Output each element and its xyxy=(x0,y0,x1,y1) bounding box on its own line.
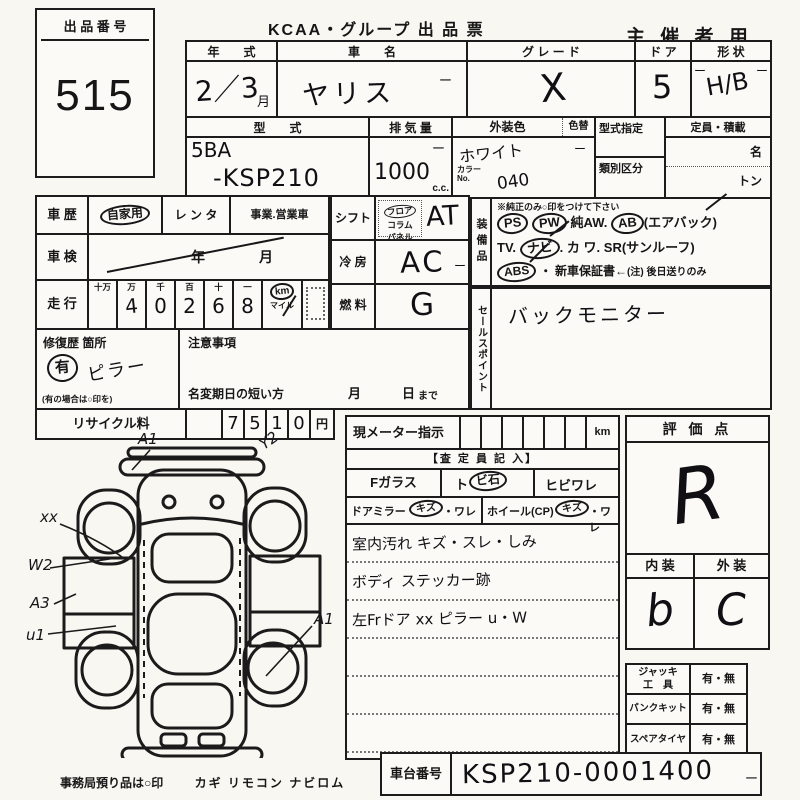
accessory-row: ジャッキ 工 具 有・無 xyxy=(627,665,746,695)
shape-label: 形 状 xyxy=(692,42,770,62)
footer-note: 事務局預り品は○印 カギ リモコン ナビロム xyxy=(60,774,345,791)
damage-code-rear-right: A1 xyxy=(313,610,334,628)
vin-box: 車台番号 KSP210-0001400 ー xyxy=(380,752,762,796)
rename-label: 名変期日の短い方 xyxy=(188,385,284,402)
accessory-row: パンクキット 有・無 xyxy=(627,695,746,725)
deposit-note: 事務局預り品は○印 xyxy=(60,776,163,790)
equipment-navi-dot: . xyxy=(560,240,564,255)
use-private-option: 自家用 xyxy=(99,203,151,227)
equipment-aw: 純AW. xyxy=(571,215,608,230)
sheet-title: KCAA・グループ 出 品 票 xyxy=(268,16,485,40)
meter-label: 現メーター指示 xyxy=(347,417,459,448)
inspection-month-unit: 月 xyxy=(259,247,273,267)
meter-digit-box xyxy=(543,417,564,448)
displacement-label: 排 気 量 xyxy=(370,118,451,138)
accessory-label: パンクキット xyxy=(627,695,691,723)
lot-number-box: 出 品 番 号 515 xyxy=(35,8,155,178)
sales-point-block: セールスポイント バックモニター xyxy=(470,287,772,410)
equipment-navi: ナビ xyxy=(519,236,561,260)
equipment-warranty: ・ 新車保証書← xyxy=(540,264,627,278)
model-label: 型 式 xyxy=(187,118,368,138)
fuel-value: G xyxy=(409,287,434,324)
meter-digit-box xyxy=(564,417,585,448)
door-mirror-kizu: キズ xyxy=(408,499,443,519)
rename-day-unit: 日 xyxy=(402,383,415,402)
year-month-suffix: 月 xyxy=(257,91,270,110)
shape-value: H/B xyxy=(704,67,751,102)
history-row: 車 歴 自家用 レ ン タ 事業.営業車 xyxy=(37,197,328,235)
auction-sheet: 出 品 番 号 515 KCAA・グループ 出 品 票 主 催 者 用 年 式 … xyxy=(0,0,800,800)
mileage-extra-box xyxy=(306,287,325,320)
meter-unit: km xyxy=(585,417,618,448)
door-value: 5 xyxy=(652,68,672,106)
caution-box: 注意事項 名変期日の短い方 月 日 まで xyxy=(178,328,470,410)
color-no-label-1: カラー xyxy=(457,165,481,174)
odo-unit: 千 xyxy=(147,281,174,294)
type-designation-label: 型式指定 xyxy=(596,118,664,138)
equipment-ab: AB xyxy=(610,212,644,236)
meter-digit-box xyxy=(459,417,480,448)
exterior-label: 外 装 xyxy=(695,555,768,577)
color-change-label: 色替 xyxy=(562,118,594,136)
rename-month-unit: 月 xyxy=(348,383,361,402)
vin-label: 車台番号 xyxy=(382,754,452,794)
inspection-year-unit: 年 xyxy=(191,247,205,267)
capacity-label: 定員・積載 xyxy=(666,118,770,138)
repair-history-box: 修復歴 箇所 有 ピラー (有の場合は○印を) xyxy=(35,328,180,410)
year-label: 年 式 xyxy=(187,42,276,62)
check-tick: ー xyxy=(574,140,586,157)
mileage-row: 走 行 十万 万4 千0 百2 十6 一8 km マイル xyxy=(37,281,328,328)
car-top-view: A1 Y2 xx W2 A3 u1 A1 xyxy=(20,428,345,758)
repair-detail: ピラー xyxy=(85,351,149,387)
ext-color-value: ホワイト xyxy=(458,137,524,168)
odo-digit: 0 xyxy=(147,294,174,318)
grade-label: グ レ ー ド xyxy=(468,42,634,62)
damage-code-w2: W2 xyxy=(28,556,52,574)
repair-mark: 有 xyxy=(46,353,79,383)
odo-digit: 6 xyxy=(205,294,232,318)
damage-code-front-right: Y2 xyxy=(256,428,282,453)
displacement-unit: c.c. xyxy=(432,183,449,194)
accessory-label2: 工 具 xyxy=(627,680,689,693)
damage-code-u1: u1 xyxy=(26,626,45,644)
controls-block: シフト フロア コラム パネル AT 冷 房 AC ー 燃 料 G xyxy=(330,195,470,330)
odo-unit: 十 xyxy=(205,281,232,294)
equipment-abs: ABS xyxy=(496,260,537,283)
repair-hint: (有の場合は○印を) xyxy=(42,393,112,405)
shift-option-floor: フロア xyxy=(384,204,417,220)
lot-number-value: 515 xyxy=(37,71,153,121)
odo-unit: 十万 xyxy=(89,281,116,294)
use-rental-option: レ ン タ xyxy=(163,197,231,233)
capacity-persons-unit: 名 xyxy=(666,138,770,167)
accessories-box: ジャッキ 工 具 有・無 パンクキット 有・無 スペアタイヤ 有・無 xyxy=(625,663,748,759)
check-tick: ー xyxy=(454,257,466,274)
damage-code-a3: A3 xyxy=(29,594,50,612)
assessor-box: 現メーター指示 km 【査 定 員 記 入】 Fガラス ト ビ石 ヒビワレ ドア… xyxy=(345,415,620,760)
door-label: ド ア xyxy=(636,42,690,62)
accessory-value: 有・無 xyxy=(691,665,746,693)
equipment-block: 装備品 ※純正のみ○印をつけて下さい PS PW 純AW. AB(エアバック) … xyxy=(470,197,772,287)
color-no-value: 040 xyxy=(496,170,531,194)
equipment-sr: SR(サンルーフ) xyxy=(604,240,695,255)
shift-option-column: コラム xyxy=(379,219,421,231)
year-value: 2／3 xyxy=(194,66,260,110)
mirror-wheel-row: ドアミラー キズ ・ワレ ホイール(CP) キズ ・ワレ xyxy=(347,498,618,525)
caution-label: 注意事項 xyxy=(188,334,236,351)
check-tick: ー xyxy=(745,768,758,787)
exterior-value: C xyxy=(714,578,749,644)
front-glass-label: Fガラス xyxy=(347,470,442,496)
front-glass-opt-stone-b: ビ石 xyxy=(468,469,508,492)
interior-value: b xyxy=(643,578,677,645)
lot-number-label: 出 品 番 号 xyxy=(41,10,149,41)
odo-digit: 8 xyxy=(234,294,261,318)
grade-box: 評 価 点 R 内 装 外 装 b C xyxy=(625,415,770,650)
inspection-strike xyxy=(107,237,284,273)
class-section-label: 類別区分 xyxy=(596,158,664,178)
assessor-note: ボディ ステッカー跡 xyxy=(352,569,491,592)
front-glass-row: Fガラス ト ビ石 ヒビワレ xyxy=(347,470,618,498)
wheel-label: ホイール(CP) xyxy=(487,503,554,519)
sales-point-value: バックモニター xyxy=(508,298,669,330)
vehicle-table-row2: 型 式 5BA -KSP210 排 気 量 ー 1000 c.c. 外装色 色替… xyxy=(185,116,772,200)
mileage-label: 走 行 xyxy=(37,281,89,328)
accessory-value: 有・無 xyxy=(691,695,746,723)
score-value: R xyxy=(664,440,731,550)
odo-digit: 4 xyxy=(117,293,146,320)
shift-options-box: フロア コラム パネル xyxy=(378,200,422,237)
blank-note-line xyxy=(347,677,618,715)
color-no-label-2: No. xyxy=(457,174,470,183)
history-label: 車 歴 xyxy=(37,197,89,233)
cooling-value: AC xyxy=(399,244,446,280)
front-glass-opt-stone-a: ト xyxy=(455,474,468,493)
model-code-prefix: 5BA xyxy=(191,138,231,162)
meter-digit-box xyxy=(501,417,522,448)
km-unit: km xyxy=(269,282,295,301)
color-no-label: カラー No. xyxy=(457,166,481,184)
damage-code-xx: xx xyxy=(39,508,58,526)
mile-unit: マイル xyxy=(263,300,301,311)
score-label: 評 価 点 xyxy=(627,417,768,443)
history-block: 車 歴 自家用 レ ン タ 事業.営業車 車 検 年 月 走 行 十万 万4 千… xyxy=(35,195,330,330)
meter-row: 現メーター指示 km xyxy=(347,417,618,450)
equipment-kawa: カ ワ. xyxy=(567,240,600,255)
repair-label: 修復歴 箇所 xyxy=(43,334,106,351)
equipment-ab-suffix: (エアバック) xyxy=(644,215,717,230)
check-tick: ー xyxy=(756,62,768,79)
equipment-ps: PS xyxy=(496,212,529,236)
deposit-items: カギ リモコン ナビロム xyxy=(195,776,346,790)
blank-note-line xyxy=(347,639,618,677)
door-mirror-ware: ・ワレ xyxy=(443,503,476,519)
inspection-label: 車 検 xyxy=(37,235,89,279)
displacement-value: 1000 xyxy=(374,160,430,185)
use-business-option: 事業.営業車 xyxy=(231,197,328,233)
front-glass-opt-crack: ヒビワレ xyxy=(545,475,597,494)
shift-label: シフト xyxy=(332,197,376,239)
name-label: 車 名 xyxy=(278,42,466,62)
wheel-kizu: キズ xyxy=(554,499,589,519)
model-code-value: -KSP210 xyxy=(213,164,320,192)
meter-digit-box xyxy=(480,417,501,448)
door-mirror-label: ドアミラー xyxy=(351,503,406,519)
rename-until: まで xyxy=(418,387,438,402)
cooling-label: 冷 房 xyxy=(332,241,376,283)
fuel-label: 燃 料 xyxy=(332,285,376,328)
odo-digit: 2 xyxy=(176,294,203,318)
blank-note-line xyxy=(347,715,618,753)
meter-digit-box xyxy=(522,417,543,448)
name-value: ヤリス xyxy=(301,70,395,112)
assessor-note: 室内汚れ キズ・スレ・しみ xyxy=(352,530,537,554)
grade-value: X xyxy=(538,65,569,111)
equipment-tv: TV. xyxy=(497,240,516,255)
interior-label: 内 装 xyxy=(627,555,695,577)
vin-value: KSP210-0001400 xyxy=(462,756,715,790)
vehicle-table-row1: 年 式 2／3 月 車 名 ヤリス ー グ レ ー ド X ド ア 5 xyxy=(185,40,772,118)
sales-point-label: セールスポイント xyxy=(474,305,489,393)
ext-color-label: 外装色 xyxy=(453,118,562,136)
odo-unit: 百 xyxy=(176,281,203,294)
equipment-label: 装備品 xyxy=(473,218,489,266)
shift-value: AT xyxy=(425,200,459,233)
check-tick: ー xyxy=(432,138,445,157)
inspection-row: 車 検 年 月 xyxy=(37,235,328,281)
accessory-label: ジャッキ xyxy=(627,667,689,680)
damage-code-front: A1 xyxy=(137,430,158,448)
check-tick: ー xyxy=(439,70,452,89)
equipment-warranty-note: (注) 後日送りのみ xyxy=(627,267,706,278)
damage-diagram: A1 Y2 xx W2 A3 u1 A1 xyxy=(20,428,345,758)
assessor-header: 【査 定 員 記 入】 xyxy=(347,450,618,470)
assessor-note: 左Frドア xx ピラー u・W xyxy=(352,606,527,630)
odo-unit: 一 xyxy=(234,281,261,294)
capacity-tons-unit: トン xyxy=(666,167,770,198)
